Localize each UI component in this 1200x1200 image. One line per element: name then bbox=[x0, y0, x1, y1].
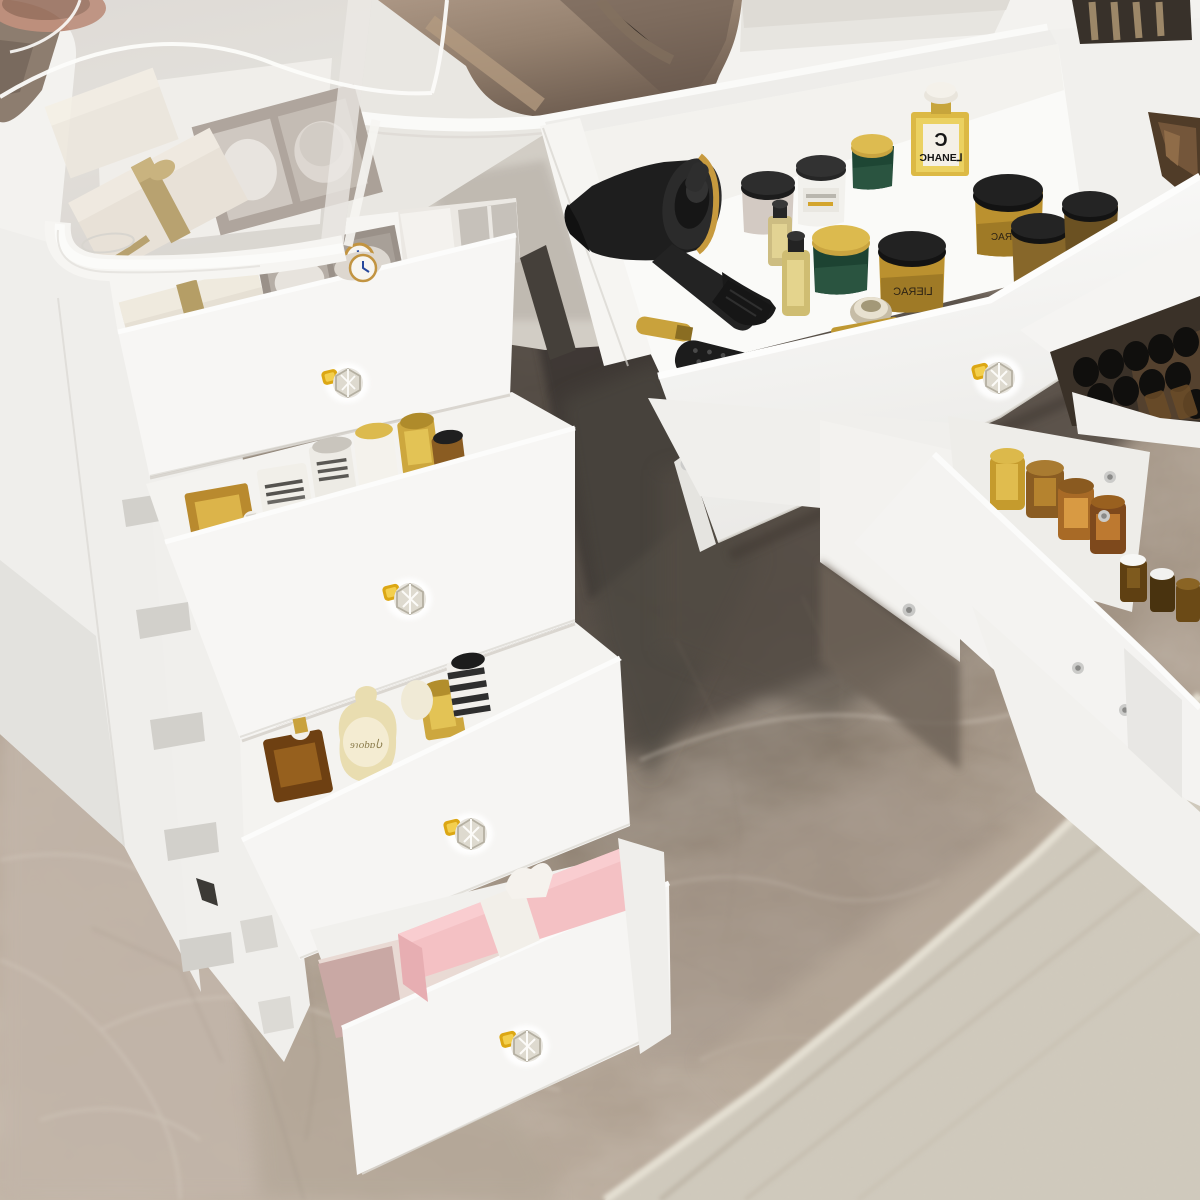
svg-text:Ɔ: Ɔ bbox=[935, 130, 948, 150]
svg-text:ƆAЯƎI⅃: ƆAЯƎI⅃ bbox=[893, 286, 933, 298]
svg-text:ƆHANE⅃: ƆHANE⅃ bbox=[919, 152, 962, 164]
svg-text:ɘɿobɒႱ: ɘɿobɒႱ bbox=[350, 738, 383, 751]
